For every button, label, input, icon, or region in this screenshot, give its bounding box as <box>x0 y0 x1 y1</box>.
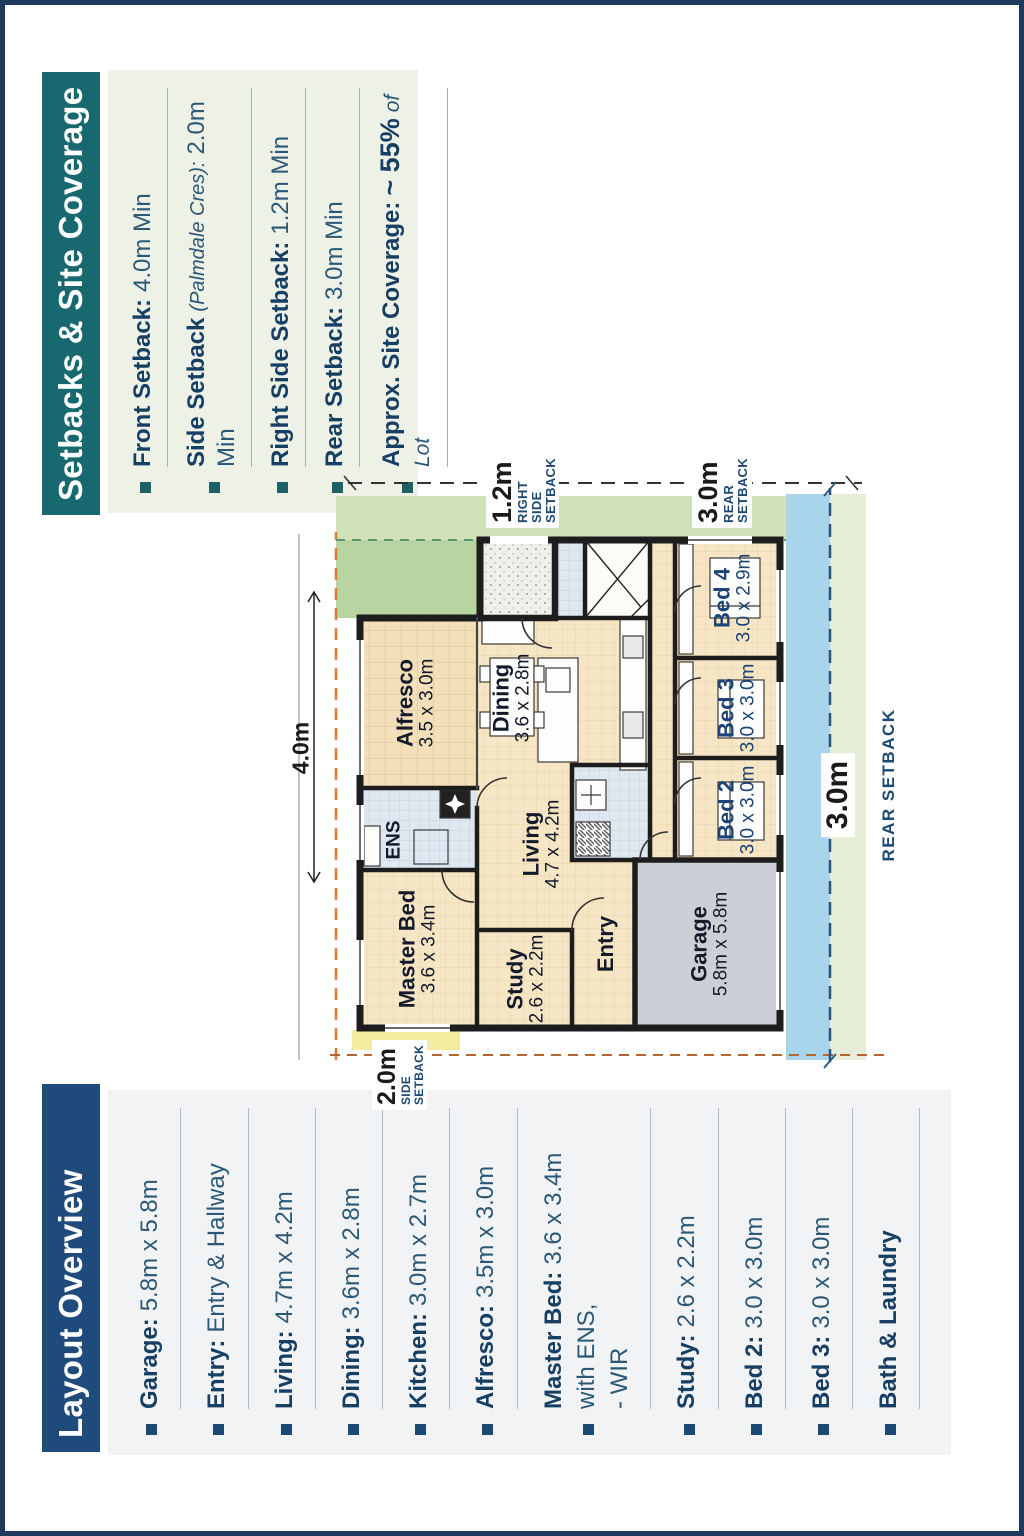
room-label-bed2: Bed 23.0 x 3.0m <box>714 766 759 855</box>
right-side-setback-label: 1.2m RIGHT SIDE SETBACK <box>486 453 559 528</box>
room-label-bed4: Bed 43.0 x 2.9m <box>710 554 755 643</box>
bullet-square-icon <box>277 482 288 493</box>
bullet-square-icon <box>885 1424 896 1435</box>
bullet-square-icon <box>348 1424 359 1435</box>
bullet-square-icon <box>482 1424 493 1435</box>
list-item: Front Setback:4.0m Min <box>114 88 168 467</box>
bullet-square-icon <box>415 1424 426 1435</box>
front-setback-dimension: 4.0m <box>288 722 315 774</box>
layout-overview-panel: Garage:5.8m x 5.8m Entry:Entry & Hallway… <box>108 1090 951 1455</box>
coverage-percent: ~ 55% <box>375 118 405 195</box>
bullet-square-icon <box>140 482 151 493</box>
room-label-study: Study2.6 x 2.2m <box>503 935 548 1024</box>
list-item: Alfresco:3.5m x 3.0m <box>450 1108 517 1409</box>
room-label-living: Living4.7 x 4.2m <box>519 800 564 889</box>
rear-setback-side-label: 3.0m REAR SETBACK <box>692 453 752 528</box>
room-label-bed3: Bed 33.0 x 3.0m <box>714 664 759 753</box>
layout-overview-header: Layout Overview <box>42 1084 100 1452</box>
list-item: Entry:Entry & Hallway <box>181 1108 248 1409</box>
bullet-square-icon <box>684 1424 695 1435</box>
room-label-master-bed: Master Bed3.6 x 3.4m <box>395 890 440 1009</box>
list-item: Right Side Setback:1.2m Min <box>252 88 306 467</box>
list-item: Approx. Site Coverage:~ 55%of Lot <box>360 88 447 467</box>
setbacks-title: Setbacks & Site Coverage <box>52 87 89 501</box>
list-item: Side Setback(Palmdale Cres):2.0m Min <box>168 88 252 467</box>
setbacks-header: Setbacks & Site Coverage <box>42 72 100 515</box>
bullet-square-icon <box>281 1424 292 1435</box>
rear-setback-words: REAR SETBACK <box>879 708 899 861</box>
list-item: Rear Setback:3.0m Min <box>306 88 360 467</box>
street-note: (Palmdale Cres): <box>187 162 209 312</box>
room-label-entry: Entry <box>594 916 618 972</box>
room-label-ens: ENS <box>385 820 406 859</box>
room-label-garage: Garage5.8m x 5.8m <box>687 892 732 997</box>
setbacks-panel: Front Setback:4.0m Min Side Setback(Palm… <box>108 70 418 513</box>
list-item-master-bed: Master Bed:3.6 x 3.4mwith ENS,- WIR <box>518 1108 652 1409</box>
list-item: Garage:5.8m x 5.8m <box>114 1108 181 1409</box>
list-item: Bath & Laundry <box>853 1108 920 1409</box>
bullet-square-icon <box>209 482 220 493</box>
master-bed-extra-line: - WIR <box>605 1108 634 1409</box>
slide-page: Layout Overview Garage:5.8m x 5.8m Entry… <box>0 0 1024 1536</box>
side-setback-label: 2.0m SIDE SETBACK <box>372 1040 427 1110</box>
list-item: Study:2.6 x 2.2m <box>651 1108 718 1409</box>
layout-overview-title: Layout Overview <box>52 1169 89 1438</box>
list-item: Living:4.7m x 4.2m <box>249 1108 316 1409</box>
rear-setback-dimension: 3.0m <box>821 753 855 837</box>
bullet-square-icon <box>146 1424 157 1435</box>
floor-plan-drawing <box>290 460 910 1110</box>
master-bed-extra-line: with ENS, <box>572 1108 601 1409</box>
list-item: Dining:3.6m x 2.8m <box>316 1108 383 1409</box>
list-item: Bed 2:3.0 x 3.0m <box>719 1108 786 1409</box>
bullet-square-icon <box>213 1424 224 1435</box>
list-item: Kitchen:3.0m x 2.7m <box>383 1108 450 1409</box>
room-label-alfresco: Alfresco3.5 x 3.0m <box>393 659 438 748</box>
floor-plan: Master Bed3.6 x 3.4m ENS Alfresco3.5 x 3… <box>290 460 910 1110</box>
bullet-square-icon <box>818 1424 829 1435</box>
room-label-dining: Dining3.6 x 2.8m <box>489 654 534 743</box>
bullet-square-icon <box>583 1424 594 1435</box>
bullet-square-icon <box>751 1424 762 1435</box>
list-item: Bed 3:3.0 x 3.0m <box>786 1108 853 1409</box>
